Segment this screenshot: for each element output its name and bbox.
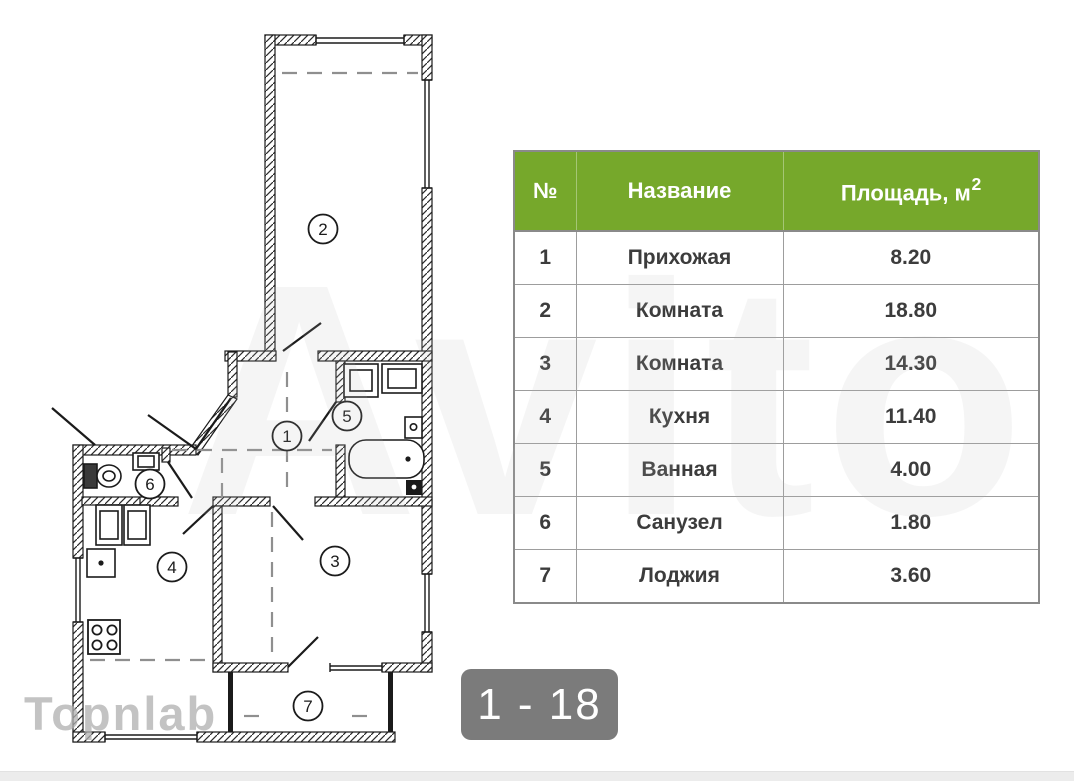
room-name-cell: Комната [576, 285, 783, 338]
table-row: 7 Лоджия 3.60 [514, 550, 1039, 604]
table-row: 1 Прихожая 8.20 [514, 231, 1039, 285]
room-name-cell: Лоджия [576, 550, 783, 604]
fridge-icon [87, 549, 115, 577]
svg-text:1: 1 [282, 427, 291, 446]
room-number-cell: 2 [514, 285, 576, 338]
svg-text:4: 4 [167, 558, 176, 577]
svg-text:6: 6 [145, 475, 154, 494]
toilet-icon [84, 464, 121, 488]
table-row: 6 Санузел 1.80 [514, 497, 1039, 550]
wc-sink-icon [133, 453, 159, 470]
area-superscript: 2 [972, 174, 982, 194]
room-number-cell: 3 [514, 338, 576, 391]
svg-text:7: 7 [303, 697, 312, 716]
room-number-cell: 4 [514, 391, 576, 444]
kitchen-unit-icon [96, 505, 150, 545]
room-area-cell: 14.30 [783, 338, 1039, 391]
room-area-cell: 11.40 [783, 391, 1039, 444]
svg-text:5: 5 [342, 407, 351, 426]
room-name-cell: Кухня [576, 391, 783, 444]
room-marker-7: 7 [294, 692, 323, 721]
column-header-name: Название [576, 151, 783, 231]
bath-cabinet-icon [382, 364, 422, 393]
door-swings [52, 323, 336, 667]
stove-icon [88, 620, 120, 654]
room-marker-3: 3 [321, 547, 350, 576]
svg-text:3: 3 [330, 552, 339, 571]
room-number-cell: 1 [514, 231, 576, 285]
room-markers: 1 2 3 4 5 6 7 [136, 215, 362, 721]
floor-plan: 1 2 3 4 5 6 7 [0, 0, 460, 760]
column-header-number: № [514, 151, 576, 231]
room-area-cell: 18.80 [783, 285, 1039, 338]
room-area-cell: 4.00 [783, 444, 1039, 497]
room-name-cell: Санузел [576, 497, 783, 550]
bottom-bar [0, 771, 1074, 781]
room-area-cell: 1.80 [783, 497, 1039, 550]
washing-machine-icon [344, 364, 378, 397]
room-marker-2: 2 [309, 215, 338, 244]
bath-sink-icon [405, 417, 422, 438]
room-number-cell: 5 [514, 444, 576, 497]
room-marker-6: 6 [136, 470, 165, 499]
gallery-pager-badge: 1 - 18 [461, 669, 618, 740]
room-marker-1: 1 [273, 422, 302, 451]
room-area-table: № Название Площадь, м2 1 Прихожая 8.20 2… [513, 150, 1040, 604]
electric-panel-icon [406, 480, 422, 495]
room-area-cell: 3.60 [783, 550, 1039, 604]
svg-text:2: 2 [318, 220, 327, 239]
room-name-cell: Ванная [576, 444, 783, 497]
table-row: 2 Комната 18.80 [514, 285, 1039, 338]
table-row: 4 Кухня 11.40 [514, 391, 1039, 444]
room-marker-4: 4 [158, 553, 187, 582]
column-header-area: Площадь, м2 [783, 151, 1039, 231]
room-name-cell: Комната [576, 338, 783, 391]
room-marker-5: 5 [333, 402, 362, 431]
table-header-row: № Название Площадь, м2 [514, 151, 1039, 231]
room-name-cell: Прихожая [576, 231, 783, 285]
table-row: 5 Ванная 4.00 [514, 444, 1039, 497]
room-area-cell: 8.20 [783, 231, 1039, 285]
bathtub-icon [349, 440, 424, 478]
listing-photo-page: { "watermarks": { "brand": "Avito", "age… [0, 0, 1074, 781]
room-number-cell: 7 [514, 550, 576, 604]
room-number-cell: 6 [514, 497, 576, 550]
table-row: 3 Комната 14.30 [514, 338, 1039, 391]
